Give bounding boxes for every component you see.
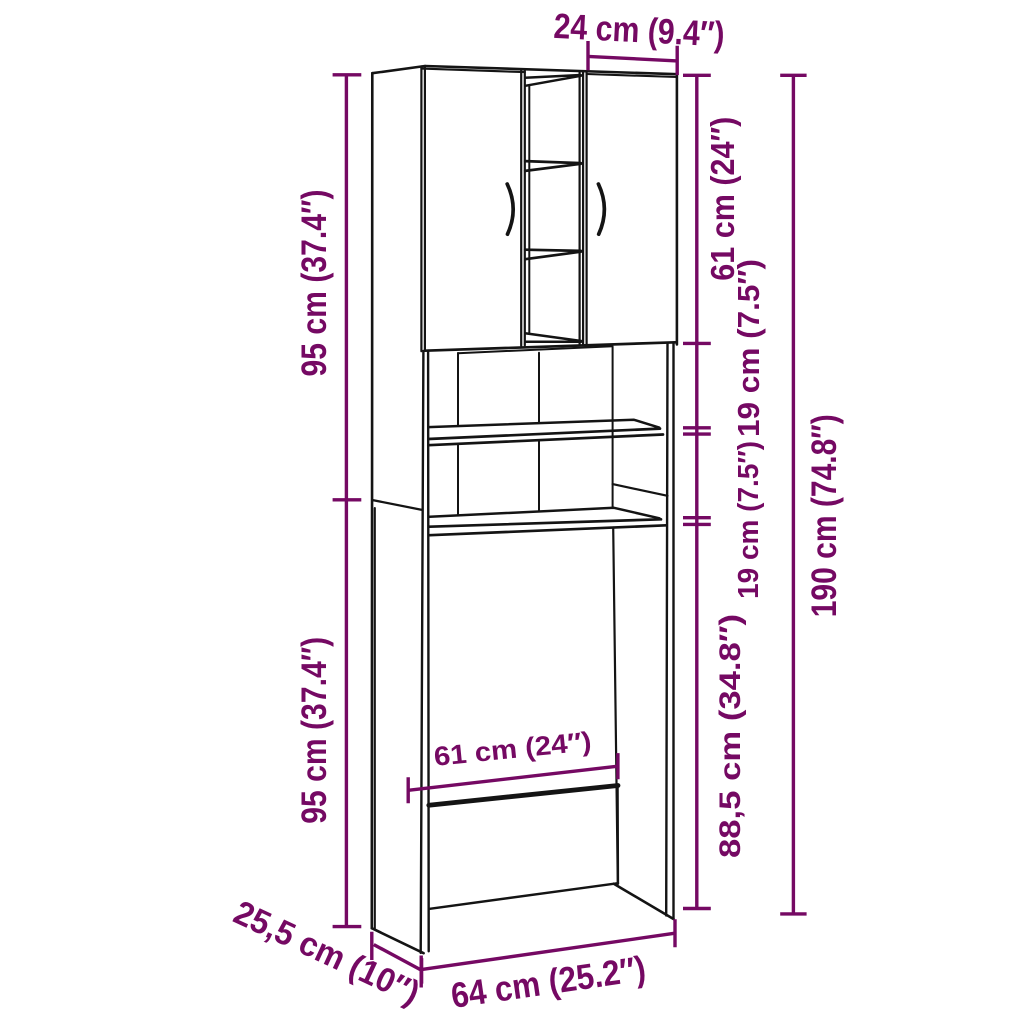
svg-text:95 cm (37.4″): 95 cm (37.4″) xyxy=(295,190,334,377)
svg-text:95 cm (37.4″): 95 cm (37.4″) xyxy=(295,637,334,824)
svg-text:190 cm (74.8″): 190 cm (74.8″) xyxy=(805,414,844,617)
svg-text:88,5 cm (34.8″): 88,5 cm (34.8″) xyxy=(714,614,747,858)
svg-text:19 cm (7.5″): 19 cm (7.5″) xyxy=(733,441,765,599)
svg-text:19 cm (7.5″): 19 cm (7.5″) xyxy=(731,259,766,437)
svg-text:61 cm (24″): 61 cm (24″) xyxy=(705,117,742,281)
